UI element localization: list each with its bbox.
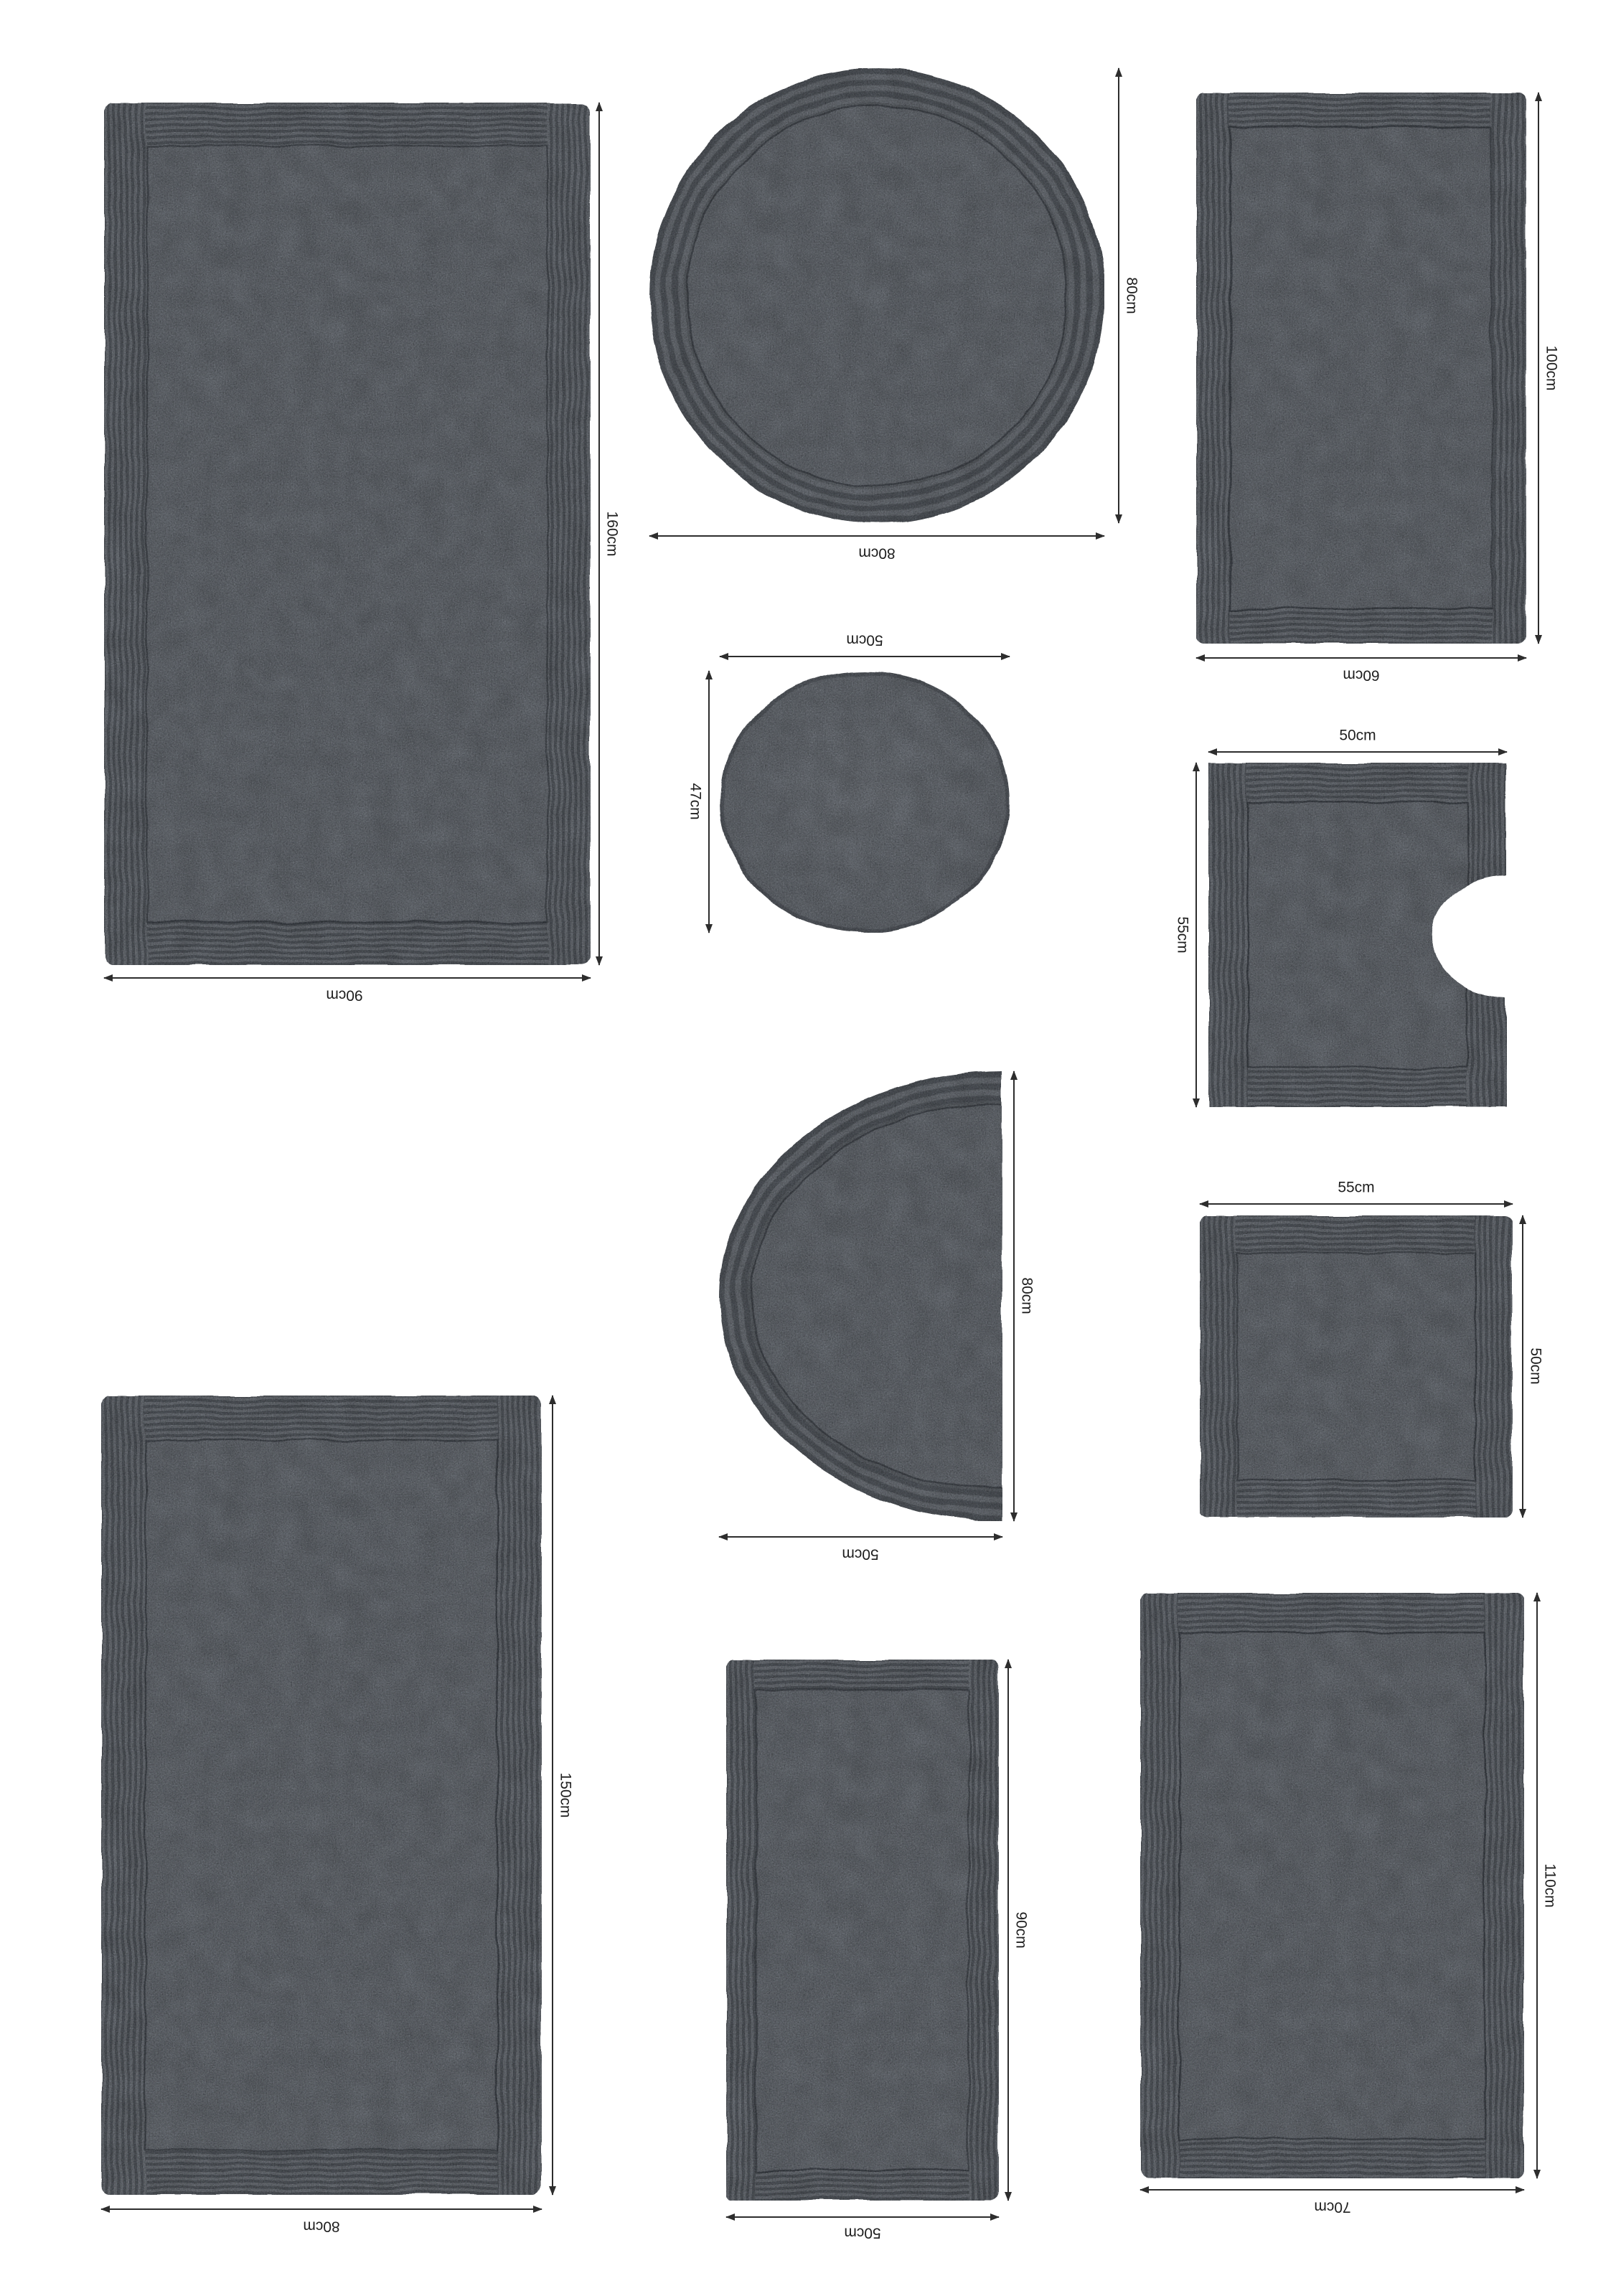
height-dimension-line	[552, 1396, 553, 2195]
height-dimension-label: 90cm	[1014, 1911, 1029, 1948]
width-dimension-line	[1208, 751, 1507, 753]
height-dimension-line	[1013, 1071, 1015, 1521]
pedestal-mat-50x55-image	[1208, 763, 1507, 1107]
height-dimension-label: 160cm	[605, 511, 620, 556]
width-dimension-line	[720, 656, 1010, 657]
height-dimension-label: 55cm	[1175, 916, 1190, 953]
round-rug-80-image	[649, 68, 1104, 523]
rectangular-rug-90x160-image	[104, 103, 591, 965]
height-dimension-line	[1195, 763, 1197, 1107]
width-dimension-label: 50cm	[844, 2226, 880, 2241]
height-dimension-line	[708, 671, 710, 933]
height-dimension-line	[598, 103, 600, 965]
rectangular-rug-50x90-image	[726, 1660, 999, 2201]
width-dimension-line	[1140, 2189, 1524, 2191]
rectangular-rug-60x100-image	[1196, 93, 1526, 644]
height-dimension-label: 80cm	[1020, 1277, 1035, 1314]
half-moon-rug-50x80-image	[719, 1071, 1002, 1521]
width-dimension-label: 50cm	[846, 633, 883, 648]
height-dimension-line	[1007, 1660, 1009, 2201]
width-dimension-line	[719, 1536, 1002, 1538]
width-dimension-label: 80cm	[303, 2219, 339, 2234]
square-mat-55x50-image	[1200, 1215, 1513, 1518]
height-dimension-line	[1118, 68, 1119, 523]
height-dimension-label: 100cm	[1544, 345, 1559, 390]
width-dimension-label: 80cm	[858, 546, 895, 561]
height-dimension-line	[1522, 1215, 1523, 1518]
width-dimension-line	[649, 535, 1104, 537]
height-dimension-label: 80cm	[1124, 277, 1140, 314]
width-dimension-label: 60cm	[1343, 668, 1379, 683]
height-dimension-line	[1536, 1593, 1538, 2178]
width-dimension-line	[1196, 657, 1526, 659]
width-dimension-label: 50cm	[1339, 728, 1376, 743]
height-dimension-label: 110cm	[1543, 1863, 1558, 1907]
width-dimension-label: 50cm	[842, 1547, 878, 1562]
product-dimensions-sheet: 160cm 90cm 80cm 80cm	[0, 0, 1621, 2296]
width-dimension-line	[726, 2216, 999, 2218]
height-dimension-line	[1538, 93, 1539, 644]
width-dimension-label: 70cm	[1314, 2200, 1350, 2215]
width-dimension-line	[101, 2208, 542, 2210]
rectangular-rug-80x150-image	[101, 1396, 542, 2195]
rectangular-rug-70x110-image	[1140, 1593, 1524, 2178]
height-dimension-label: 47cm	[688, 783, 703, 819]
height-dimension-label: 50cm	[1528, 1347, 1544, 1384]
oval-lid-cover-50x47-image	[720, 671, 1010, 933]
width-dimension-label: 55cm	[1338, 1180, 1374, 1195]
width-dimension-line	[1200, 1203, 1513, 1205]
height-dimension-label: 150cm	[558, 1772, 573, 1817]
width-dimension-label: 90cm	[326, 988, 362, 1003]
width-dimension-line	[104, 977, 591, 979]
